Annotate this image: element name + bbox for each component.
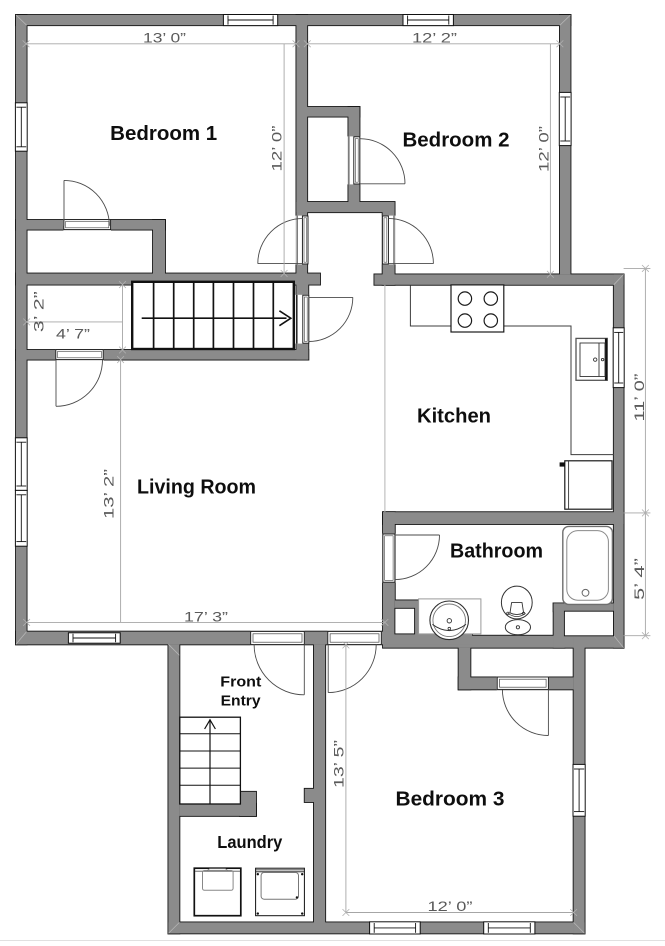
svg-text:Bedroom 1: Bedroom 1 xyxy=(110,123,217,145)
svg-text:Bathroom: Bathroom xyxy=(450,540,543,562)
svg-text:Kitchen: Kitchen xyxy=(417,406,491,428)
svg-text:Living Room: Living Room xyxy=(137,476,256,498)
svg-text:Entry: Entry xyxy=(221,692,262,709)
svg-text:Front: Front xyxy=(220,674,261,691)
svg-text:Bedroom 3: Bedroom 3 xyxy=(396,788,505,810)
svg-text:12’ 0”: 12’ 0” xyxy=(269,125,285,171)
svg-text:Laundry: Laundry xyxy=(217,832,282,852)
svg-text:12’ 2”: 12’ 2” xyxy=(412,29,457,45)
svg-text:17’ 3”: 17’ 3” xyxy=(184,608,228,624)
svg-text:5’ 4”: 5’ 4” xyxy=(631,557,647,600)
svg-text:3’ 2”: 3’ 2” xyxy=(31,291,47,333)
svg-text:12’ 0”: 12’ 0” xyxy=(536,126,552,172)
svg-text:4’ 7”: 4’ 7” xyxy=(56,325,90,341)
svg-text:13’ 0”: 13’ 0” xyxy=(143,29,186,45)
svg-text:Bedroom 2: Bedroom 2 xyxy=(403,129,510,151)
svg-text:11’ 0”: 11’ 0” xyxy=(631,373,647,421)
svg-text:12’ 0”: 12’ 0” xyxy=(428,898,473,914)
svg-text:13’ 2”: 13’ 2” xyxy=(101,469,117,519)
svg-text:13’ 5”: 13’ 5” xyxy=(331,740,347,788)
